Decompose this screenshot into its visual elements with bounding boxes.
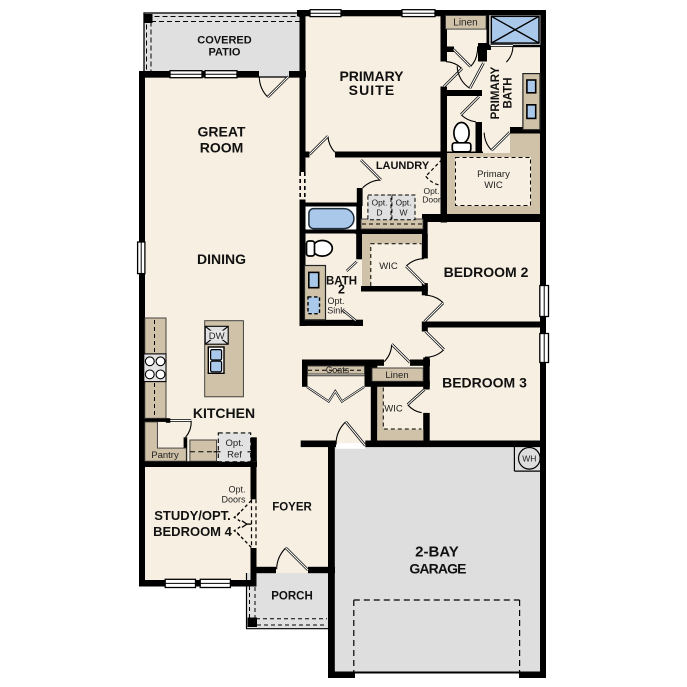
- svg-text:KITCHEN: KITCHEN: [193, 405, 255, 421]
- svg-text:BATH: BATH: [503, 77, 515, 108]
- svg-text:WH: WH: [522, 453, 536, 463]
- svg-text:PORCH: PORCH: [271, 591, 313, 603]
- svg-text:FOYER: FOYER: [272, 502, 312, 514]
- svg-text:ROOM: ROOM: [200, 140, 244, 156]
- svg-text:WIC: WIC: [484, 180, 503, 191]
- svg-text:STUDY/OPT.: STUDY/OPT.: [154, 508, 231, 523]
- svg-text:W: W: [399, 208, 407, 218]
- svg-text:WIC: WIC: [384, 404, 403, 415]
- svg-text:DW: DW: [209, 331, 225, 342]
- svg-text:Opt.: Opt.: [371, 198, 387, 208]
- svg-text:BEDROOM 3: BEDROOM 3: [442, 375, 527, 391]
- svg-text:BEDROOM 4: BEDROOM 4: [153, 524, 233, 539]
- svg-text:Pantry: Pantry: [151, 450, 179, 461]
- svg-text:PRIMARY: PRIMARY: [490, 66, 502, 119]
- svg-text:2-BAY: 2-BAY: [415, 543, 459, 560]
- svg-text:SUITE: SUITE: [349, 82, 396, 98]
- svg-text:GREAT: GREAT: [198, 123, 246, 139]
- svg-text:Primary: Primary: [477, 169, 510, 180]
- svg-text:Coats: Coats: [326, 365, 350, 375]
- svg-text:Sink: Sink: [327, 306, 345, 316]
- svg-text:2: 2: [338, 283, 345, 297]
- svg-text:GARAGE: GARAGE: [409, 561, 466, 577]
- svg-text:D: D: [376, 208, 382, 218]
- svg-text:LAUNDRY: LAUNDRY: [376, 160, 430, 172]
- svg-text:Linen: Linen: [453, 18, 477, 29]
- svg-text:Door: Door: [422, 195, 441, 205]
- svg-text:Opt.: Opt.: [228, 485, 245, 495]
- svg-text:COVERED: COVERED: [197, 35, 251, 47]
- svg-text:Opt.: Opt.: [395, 198, 411, 208]
- svg-text:Doors: Doors: [221, 494, 246, 504]
- svg-text:Opt.: Opt.: [327, 296, 344, 306]
- svg-text:PATIO: PATIO: [209, 46, 241, 58]
- svg-text:WIC: WIC: [379, 261, 398, 272]
- svg-text:DINING: DINING: [197, 251, 246, 267]
- svg-text:Opt.: Opt.: [226, 438, 244, 449]
- svg-text:BEDROOM 2: BEDROOM 2: [444, 264, 529, 280]
- svg-text:Ref: Ref: [227, 450, 242, 461]
- svg-text:Linen: Linen: [385, 370, 408, 381]
